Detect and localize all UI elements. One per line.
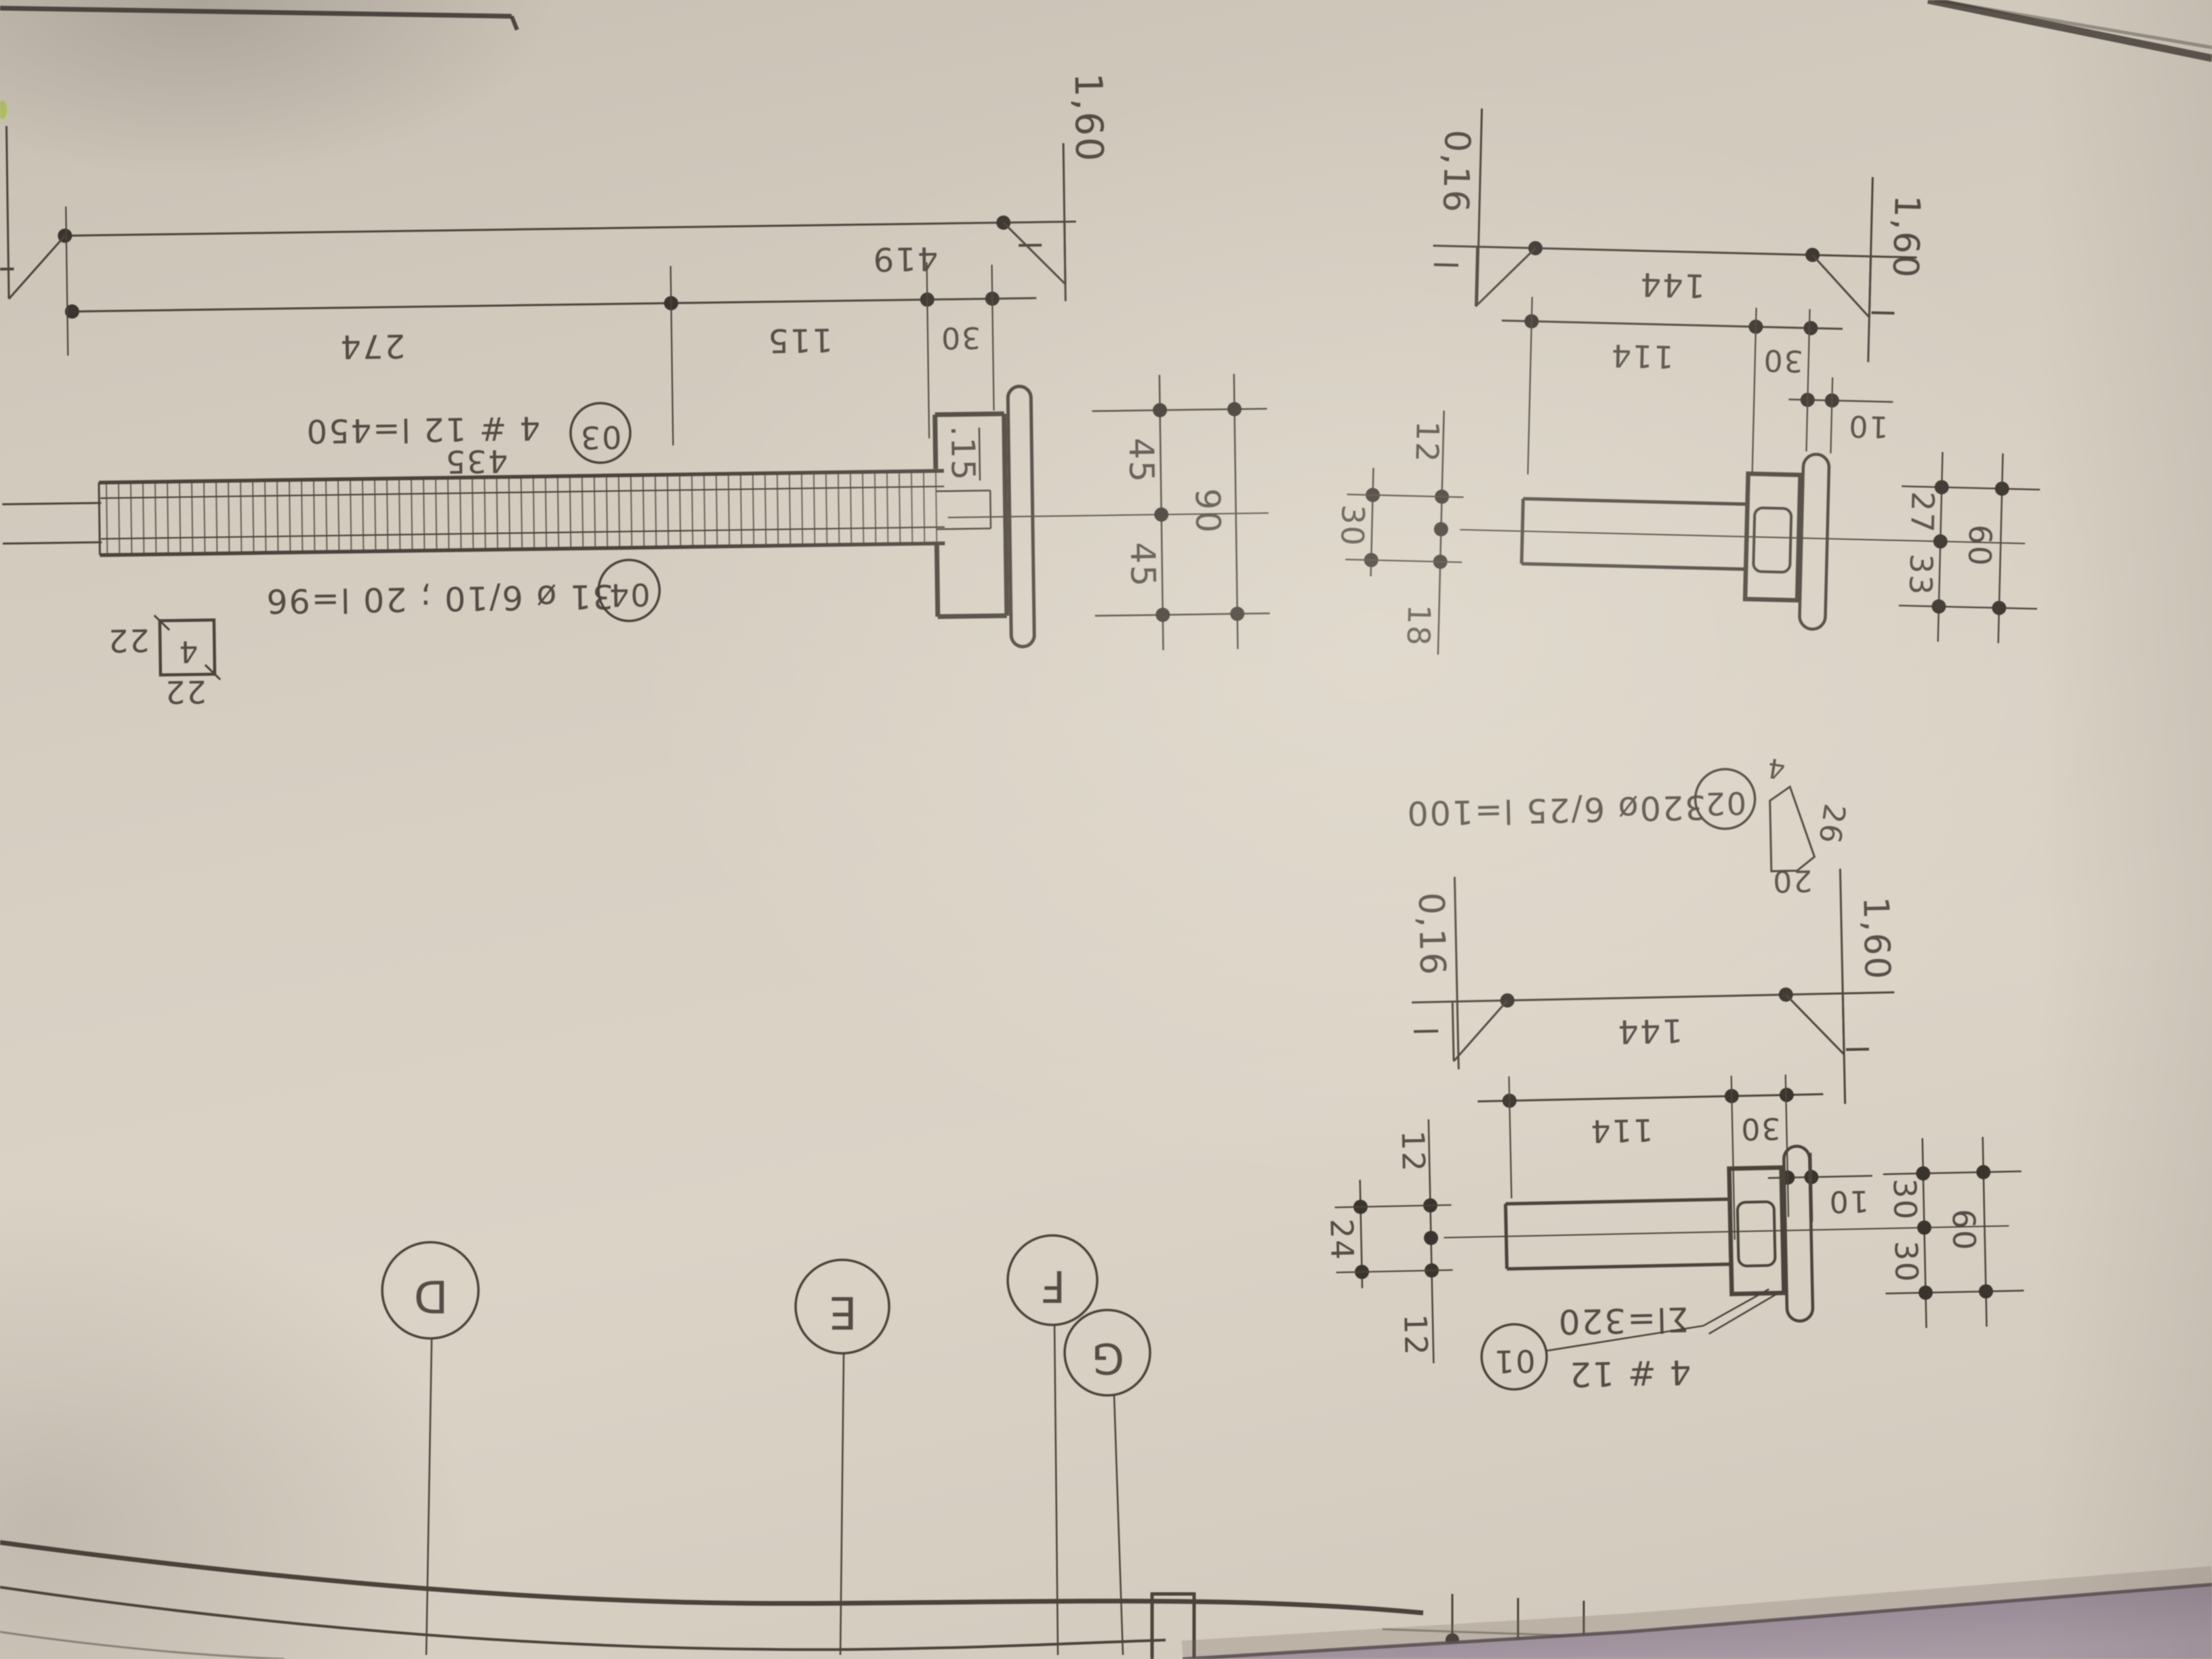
dim-label-27: 27: [1904, 491, 1942, 534]
rebar-callout-02: 320ø 6/25 l=100 02 4 26 20: [1405, 750, 1854, 906]
dim-label-30: 30: [1762, 342, 1803, 377]
stirrup-bend-detail: 4 22 22: [106, 615, 220, 712]
dim-label-30-bottom: 30: [1887, 1240, 1925, 1284]
level-label-160: 1,60: [1885, 194, 1927, 279]
depth-label-15: .15: [943, 426, 982, 482]
table-surface: [1183, 1576, 2212, 1659]
level-label-016: 0,16: [1410, 892, 1453, 977]
hook-dim-4: 4: [1764, 752, 1787, 785]
dim-label-10: 10: [1847, 409, 1889, 444]
bent-bar-symbol: [1769, 786, 1815, 871]
dim-label-60: 60: [1945, 1208, 1982, 1252]
dim-label-45-lower: 45: [1123, 541, 1163, 588]
footing-anchor: [1753, 508, 1791, 572]
structural-drawing-photo: 419 1,60 274 115 30: [0, 0, 2212, 1659]
dim-label-274: 274: [339, 327, 405, 365]
callout-01-bars: 4 # 12: [1568, 1352, 1692, 1394]
dim-label-90: 90: [1188, 488, 1228, 534]
dim-label-144: 144: [1639, 265, 1706, 304]
hook-dim-20: 20: [1771, 863, 1813, 898]
grid-label-f: F: [1040, 1260, 1066, 1310]
footing-detail-bottom: 0,16 144 1,60 114 30 10: [1316, 865, 2026, 1399]
grid-label-e: E: [827, 1286, 857, 1338]
callout-03-number: 03: [579, 419, 621, 456]
dim-label-60: 60: [1961, 524, 1999, 567]
beam-end-block: .15: [935, 413, 1007, 616]
dim-label-33: 33: [1902, 553, 1940, 596]
green-speck: [0, 100, 7, 119]
stirrup-dim-22-side: 22: [107, 622, 150, 659]
level-label-016: 0,16: [1435, 129, 1477, 214]
dim-label-30-top: 30: [1886, 1178, 1923, 1221]
dim-label-18: 18: [1400, 604, 1438, 647]
grid-label-g: G: [1090, 1334, 1124, 1383]
top-right-diagonal-line: [1928, 0, 2212, 58]
dim-label-419: 419: [872, 239, 938, 278]
dim-label-114: 114: [1589, 1111, 1654, 1149]
stirrup-dim-22-bottom: 22: [164, 673, 207, 710]
stirrup-mark-4: 4: [178, 634, 199, 668]
top-left-edge-line: [0, 8, 512, 16]
callout-04-text: 31 ø 6/10 ; 20 l=96: [265, 577, 614, 620]
dim-label-30: 30: [940, 320, 981, 355]
dim-label-114: 114: [1610, 337, 1674, 375]
dim-label-12-bottom: 12: [1397, 1313, 1434, 1357]
callout-02-text: 320ø 6/25 l=100: [1406, 787, 1706, 832]
footing-detail-top: 0,16 144 1,60 114 30 10: [1331, 105, 2049, 669]
dim-label-24: 24: [1323, 1218, 1360, 1262]
dim-label-435: 435: [444, 443, 508, 480]
dim-label-30-total: 30: [1334, 504, 1372, 548]
footing-anchor: [1738, 1202, 1776, 1266]
callout-01-sum: Σl=320: [1557, 1299, 1689, 1341]
dim-label-45-upper: 45: [1122, 437, 1162, 483]
dim-label-30: 30: [1740, 1111, 1781, 1146]
footing-cap: [1799, 454, 1829, 630]
hook-dim-26: 26: [1811, 802, 1852, 847]
dim-label-144: 144: [1616, 1011, 1683, 1050]
dim-label-115: 115: [766, 321, 833, 359]
main-beam-section: 419 1,60 274 115 30: [0, 70, 1271, 713]
level-label-160: 1,60: [1065, 73, 1111, 163]
callout-02-number: 02: [1704, 785, 1747, 822]
dim-label-12-top: 12: [1395, 1130, 1432, 1173]
callout-01-number: 01: [1493, 1343, 1536, 1380]
grid-label-d: D: [413, 1270, 449, 1322]
dim-label-12: 12: [1408, 420, 1446, 464]
level-label-160: 1,60: [1855, 896, 1898, 981]
drawing-sheet: 419 1,60 274 115 30: [0, 0, 2212, 1659]
dim-label-10: 10: [1828, 1183, 1869, 1218]
